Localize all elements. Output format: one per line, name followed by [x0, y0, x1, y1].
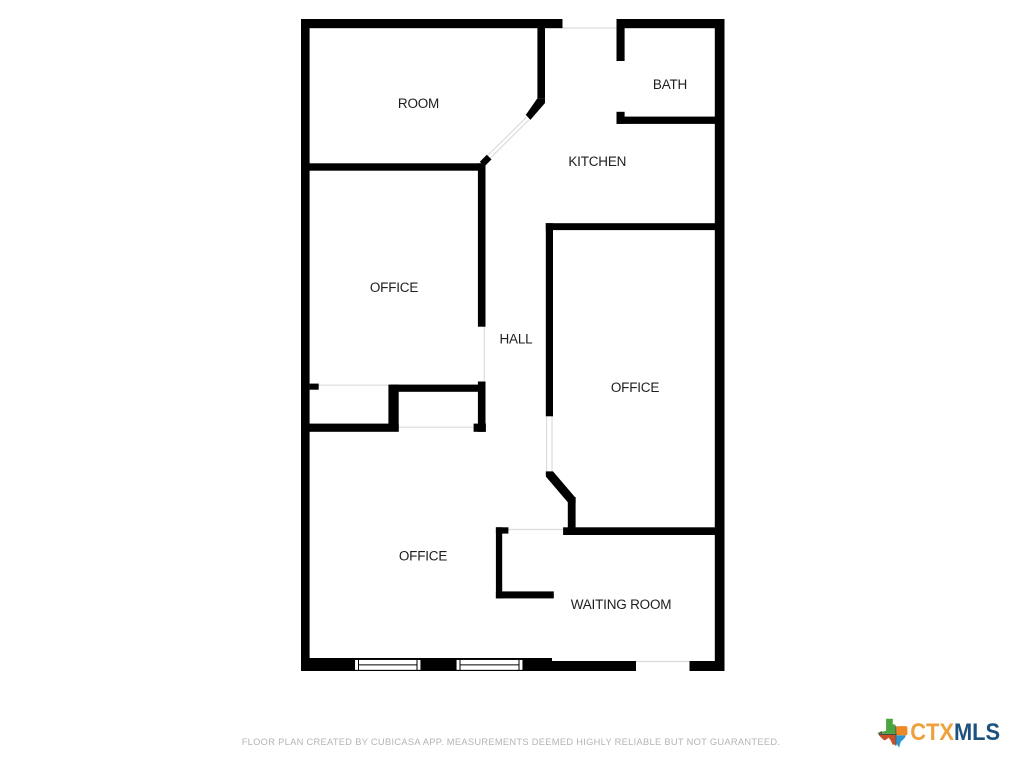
svg-text:BATH: BATH [653, 77, 687, 92]
svg-text:CTXMLS: CTXMLS [910, 718, 1000, 745]
svg-text:KITCHEN: KITCHEN [568, 154, 626, 169]
svg-text:HALL: HALL [500, 331, 534, 346]
svg-text:OFFICE: OFFICE [611, 380, 659, 395]
svg-text:FLOOR PLAN CREATED BY CUBICASA: FLOOR PLAN CREATED BY CUBICASA APP. MEAS… [242, 737, 781, 747]
svg-text:OFFICE: OFFICE [370, 280, 418, 295]
svg-text:OFFICE: OFFICE [399, 548, 447, 563]
svg-text:WAITING ROOM: WAITING ROOM [571, 597, 672, 612]
svg-text:ROOM: ROOM [398, 96, 439, 111]
